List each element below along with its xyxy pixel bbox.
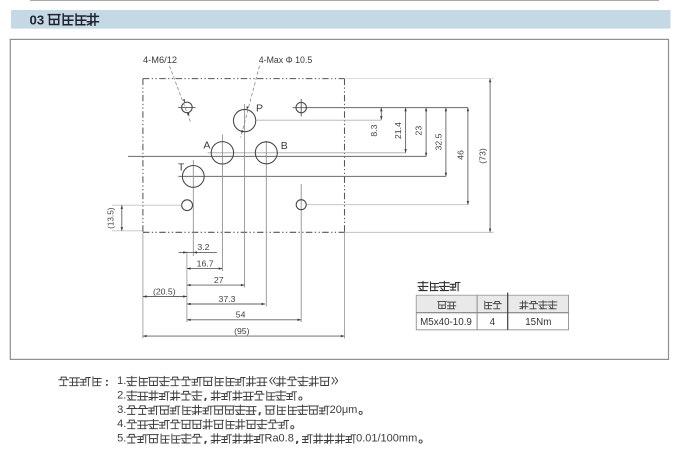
svg-text:3.: 3. bbox=[117, 404, 126, 416]
svg-text:(95): (95) bbox=[234, 326, 250, 336]
svg-text:03: 03 bbox=[30, 12, 45, 27]
svg-text:(73): (73) bbox=[478, 148, 488, 164]
svg-text:M5x40-10.9: M5x40-10.9 bbox=[420, 317, 472, 328]
svg-text:Ra0.8: Ra0.8 bbox=[265, 433, 294, 445]
svg-text:5.: 5. bbox=[117, 433, 126, 445]
svg-text:(13.5): (13.5) bbox=[106, 207, 115, 229]
svg-text:37.3: 37.3 bbox=[219, 294, 236, 304]
svg-text:15Nm: 15Nm bbox=[525, 317, 551, 328]
svg-text:P: P bbox=[256, 102, 263, 114]
svg-text:54: 54 bbox=[236, 310, 246, 320]
svg-text:B: B bbox=[281, 140, 288, 152]
svg-text:2.: 2. bbox=[117, 390, 126, 402]
svg-text:16.7: 16.7 bbox=[197, 258, 214, 268]
svg-text:T: T bbox=[178, 162, 185, 174]
svg-text:23: 23 bbox=[414, 126, 424, 136]
svg-text:A: A bbox=[203, 139, 210, 151]
svg-text:3.2: 3.2 bbox=[197, 242, 209, 252]
svg-text:4-M6/12: 4-M6/12 bbox=[143, 55, 177, 65]
svg-text:4.: 4. bbox=[117, 418, 126, 430]
svg-text:8.3: 8.3 bbox=[369, 124, 379, 136]
svg-text:4: 4 bbox=[490, 317, 496, 328]
svg-text:1.: 1. bbox=[117, 375, 126, 387]
svg-text:(20.5): (20.5) bbox=[153, 286, 176, 296]
svg-text:20μm: 20μm bbox=[330, 404, 358, 416]
svg-text:46: 46 bbox=[455, 150, 465, 160]
svg-text:32.5: 32.5 bbox=[433, 133, 443, 150]
svg-text:4-Max Φ 10.5: 4-Max Φ 10.5 bbox=[259, 55, 313, 65]
svg-text:21.4: 21.4 bbox=[393, 122, 403, 139]
svg-text:27: 27 bbox=[214, 275, 224, 285]
svg-text:0.01/100mm: 0.01/100mm bbox=[356, 433, 417, 445]
